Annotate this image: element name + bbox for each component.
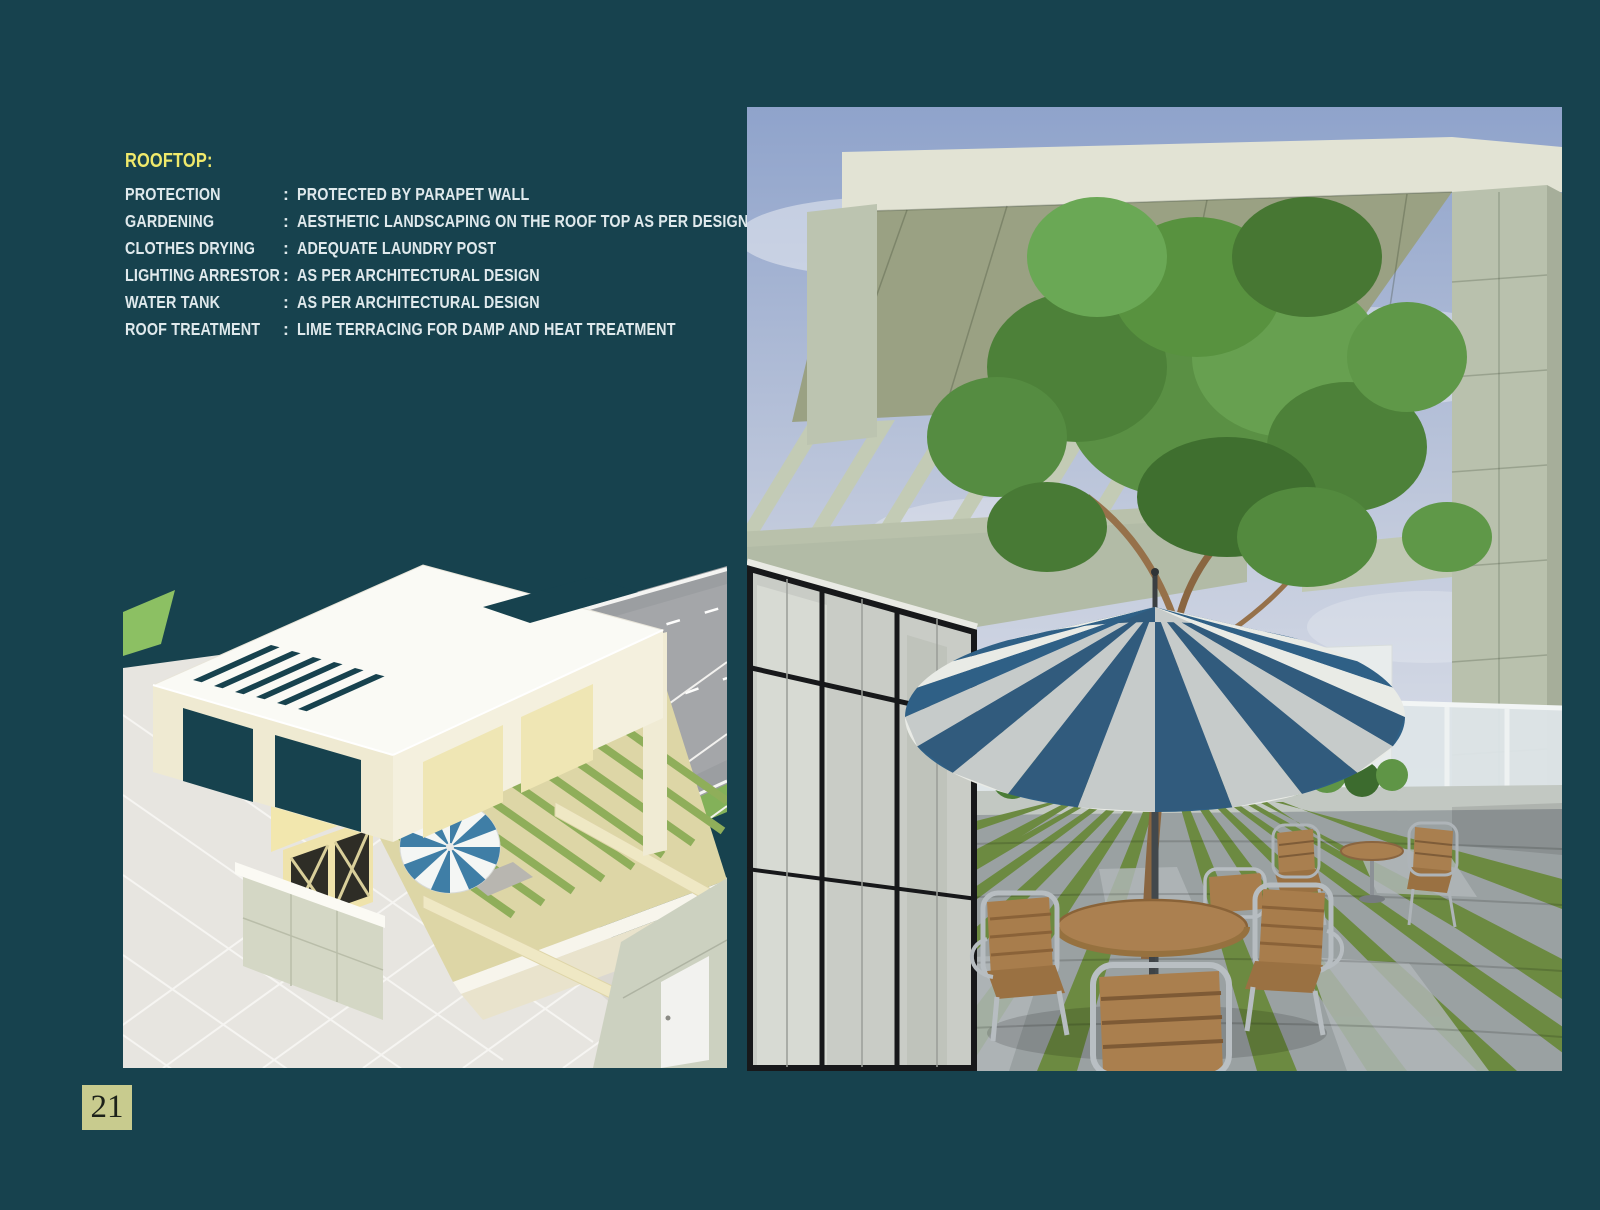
spec-row-roof-treatment: ROOF TREATMENT : LIME TERRACING FOR DAMP… bbox=[125, 316, 745, 343]
spec-value: ADEQUATE LAUNDRY POST bbox=[297, 235, 496, 262]
section-title: ROOFTOP: bbox=[125, 146, 745, 176]
rooftop-terrace-render bbox=[747, 107, 1562, 1071]
rooftop-terrace-figure bbox=[747, 107, 1562, 1071]
spec-label: WATER TANK bbox=[125, 289, 220, 316]
spec-colon: : bbox=[283, 289, 297, 316]
spec-value: LIME TERRACING FOR DAMP AND HEAT TREATME… bbox=[297, 316, 676, 343]
spec-colon: : bbox=[283, 235, 297, 262]
spec-row-protection: PROTECTION : PROTECTED BY PARAPET WALL bbox=[125, 181, 745, 208]
bistro-table bbox=[1341, 842, 1403, 860]
spec-label: GARDENING bbox=[125, 208, 214, 235]
rooftop-isometric-figure bbox=[123, 550, 727, 1068]
portfolio-page: ROOFTOP: PROTECTION : PROTECTED BY PARAP… bbox=[0, 0, 1600, 1210]
spec-label: PROTECTION bbox=[125, 181, 221, 208]
spec-colon: : bbox=[283, 208, 297, 235]
spec-value: AESTHETIC LANDSCAPING ON THE ROOF TOP AS… bbox=[297, 208, 748, 235]
spec-row-lighting-arrestor: LIGHTING ARRESTOR : AS PER ARCHITECTURAL… bbox=[125, 262, 745, 289]
spec-label: ROOF TREATMENT bbox=[125, 316, 260, 343]
page-number: 21 bbox=[91, 1089, 124, 1126]
glass-curtain-wall bbox=[747, 562, 977, 1071]
rooftop-isometric-render bbox=[123, 550, 727, 1068]
spec-colon: : bbox=[283, 262, 297, 289]
spec-value: AS PER ARCHITECTURAL DESIGN bbox=[297, 262, 540, 289]
spec-colon: : bbox=[283, 316, 297, 343]
rooftop-spec-block: ROOFTOP: PROTECTION : PROTECTED BY PARAP… bbox=[125, 146, 745, 343]
pergola-column-left bbox=[807, 204, 877, 445]
spec-value: PROTECTED BY PARAPET WALL bbox=[297, 181, 529, 208]
page-number-badge: 21 bbox=[82, 1085, 132, 1130]
spec-row-gardening: GARDENING : AESTHETIC LANDSCAPING ON THE… bbox=[125, 208, 745, 235]
spec-value: AS PER ARCHITECTURAL DESIGN bbox=[297, 289, 540, 316]
spec-colon: : bbox=[283, 181, 297, 208]
spec-label: LIGHTING ARRESTOR bbox=[125, 262, 280, 289]
door-knob bbox=[666, 1016, 671, 1021]
spec-row-water-tank: WATER TANK : AS PER ARCHITECTURAL DESIGN bbox=[125, 289, 745, 316]
patio-chair-front bbox=[1093, 965, 1229, 1071]
spec-label: CLOTHES DRYING bbox=[125, 235, 255, 262]
spec-row-clothes-drying: CLOTHES DRYING : ADEQUATE LAUNDRY POST bbox=[125, 235, 745, 262]
